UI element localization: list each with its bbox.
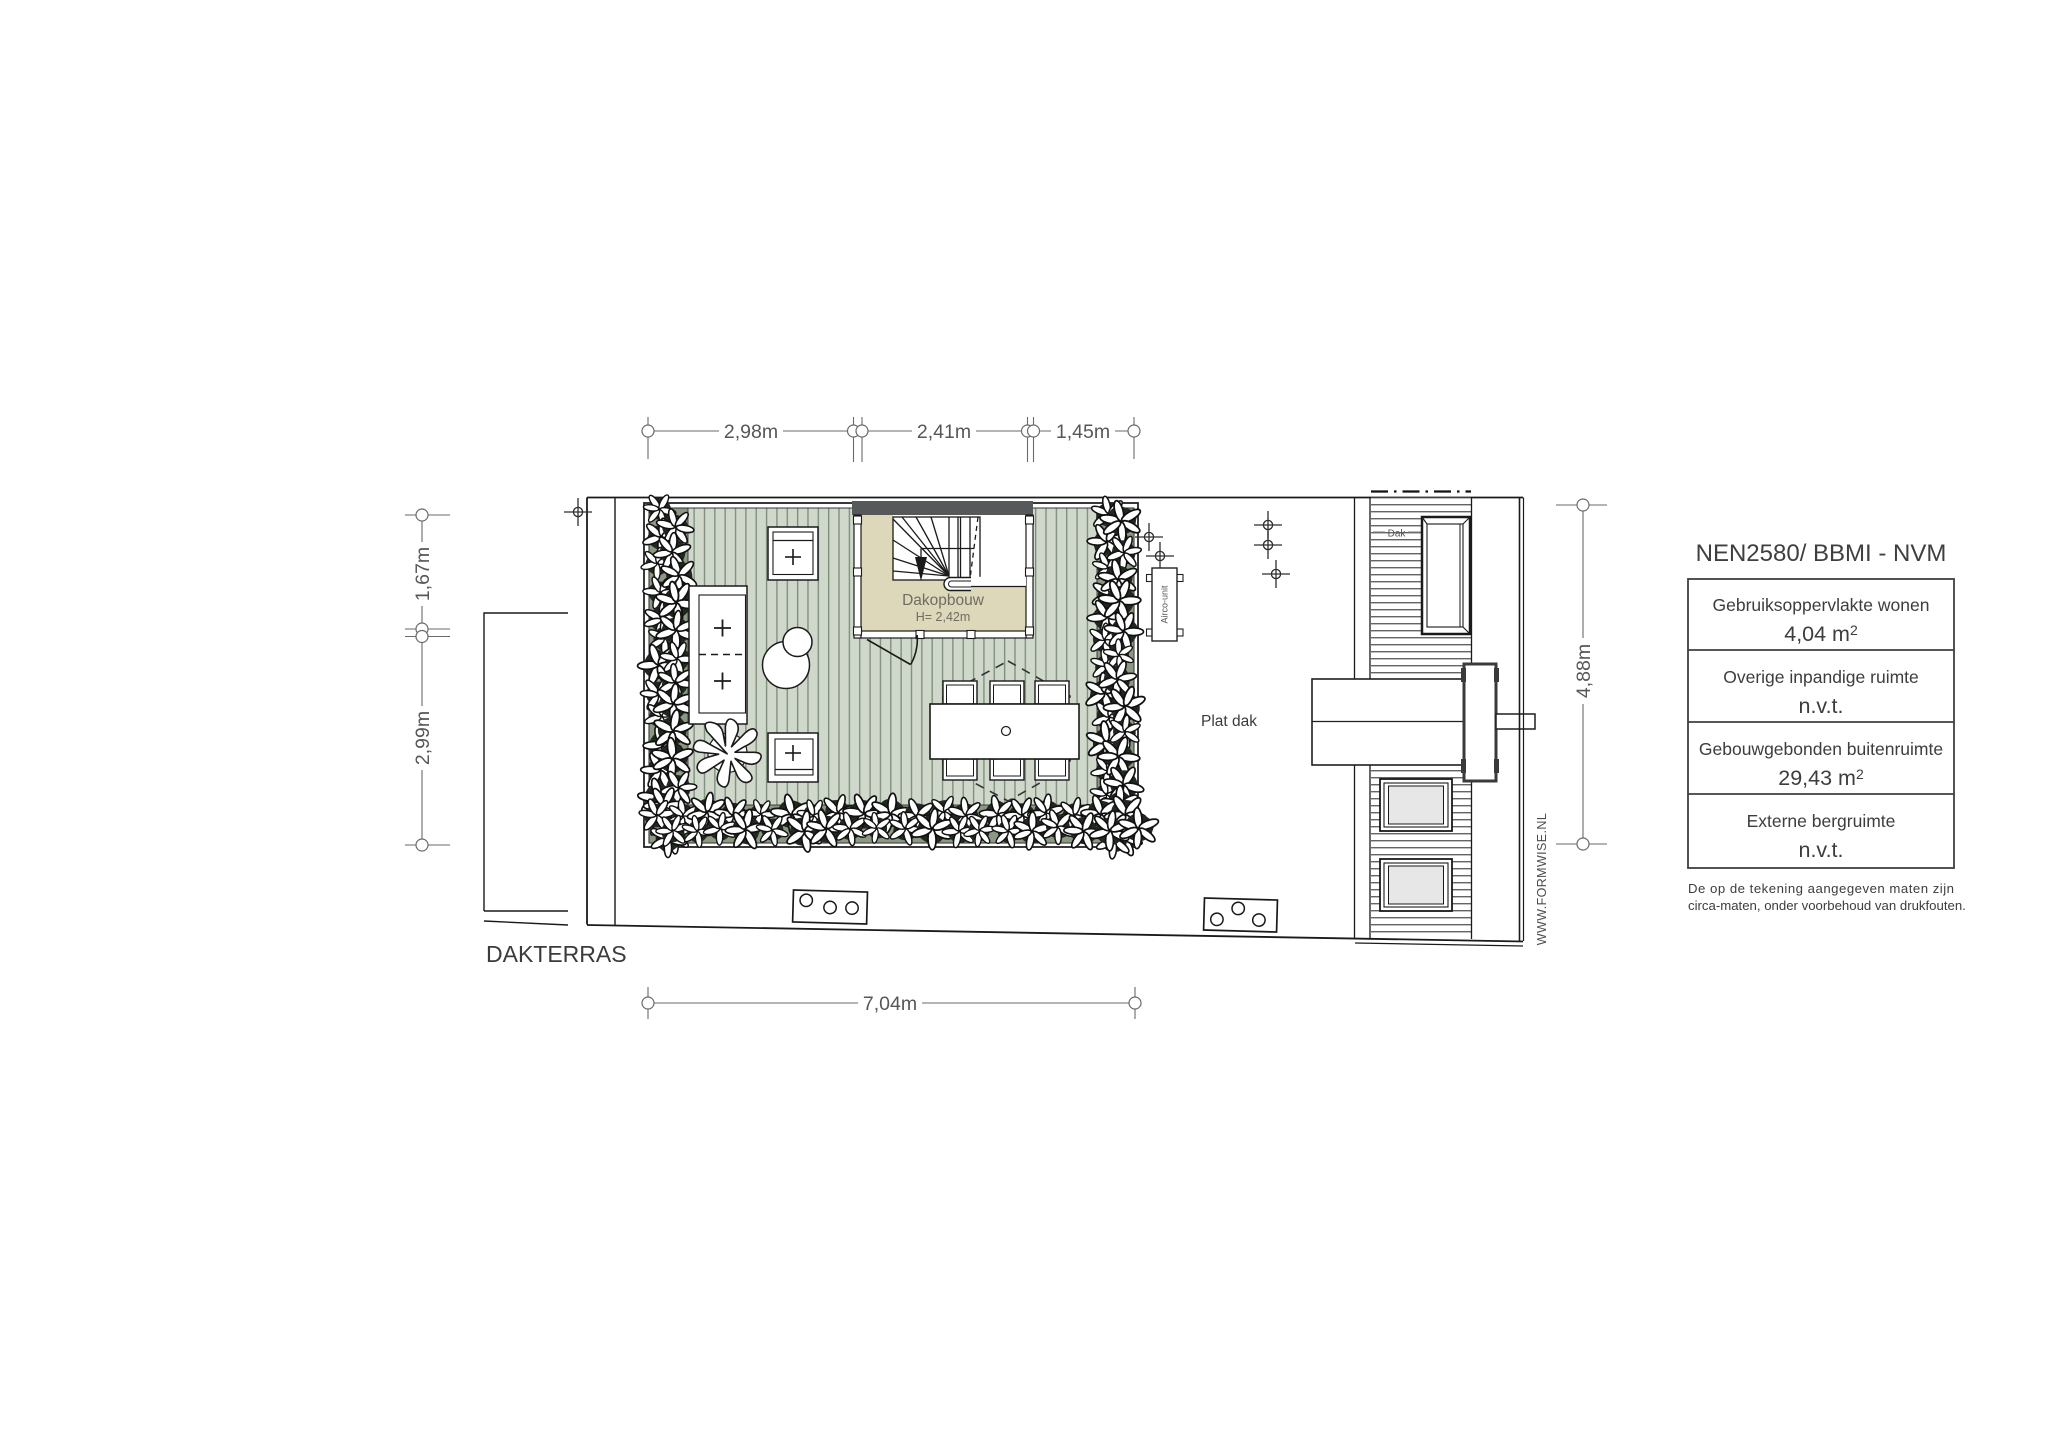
svg-text:Externe bergruimte: Externe bergruimte xyxy=(1747,811,1896,831)
svg-text:Airco-unit: Airco-unit xyxy=(1160,585,1170,624)
svg-text:Gebouwgebonden buitenruimte: Gebouwgebonden buitenruimte xyxy=(1699,739,1943,759)
svg-text:7,04m: 7,04m xyxy=(863,993,917,1015)
svg-text:circa-maten, onder voorbehoud: circa-maten, onder voorbehoud van drukfo… xyxy=(1688,898,1966,913)
svg-text:Plat dak: Plat dak xyxy=(1201,713,1257,730)
svg-text:Dakopbouw: Dakopbouw xyxy=(902,592,985,609)
svg-text:n.v.t.: n.v.t. xyxy=(1798,838,1843,862)
svg-text:Gebruiksoppervlakte wonen: Gebruiksoppervlakte wonen xyxy=(1713,595,1930,615)
svg-text:2,41m: 2,41m xyxy=(917,421,971,443)
svg-text:1,45m: 1,45m xyxy=(1056,421,1110,443)
svg-text:De op de tekening aangegeven m: De op de tekening aangegeven maten zijn xyxy=(1688,881,1954,896)
svg-text:Overige inpandige ruimte: Overige inpandige ruimte xyxy=(1723,667,1919,687)
svg-text:NEN2580/ BBMI - NVM: NEN2580/ BBMI - NVM xyxy=(1696,540,1947,567)
svg-text:WWW.FORMWISE.NL: WWW.FORMWISE.NL xyxy=(1535,813,1549,945)
svg-text:Dak: Dak xyxy=(1388,529,1407,540)
svg-text:2,99m: 2,99m xyxy=(412,711,434,765)
svg-text:DAKTERRAS: DAKTERRAS xyxy=(486,941,627,967)
svg-text:2,98m: 2,98m xyxy=(724,421,778,443)
svg-text:H= 2,42m: H= 2,42m xyxy=(916,610,971,624)
svg-text:1,67m: 1,67m xyxy=(412,547,434,601)
svg-text:29,43 m2: 29,43 m2 xyxy=(1778,766,1864,790)
svg-text:n.v.t.: n.v.t. xyxy=(1798,694,1843,718)
svg-text:4,04 m2: 4,04 m2 xyxy=(1784,622,1858,646)
svg-text:4,88m: 4,88m xyxy=(1573,644,1595,698)
